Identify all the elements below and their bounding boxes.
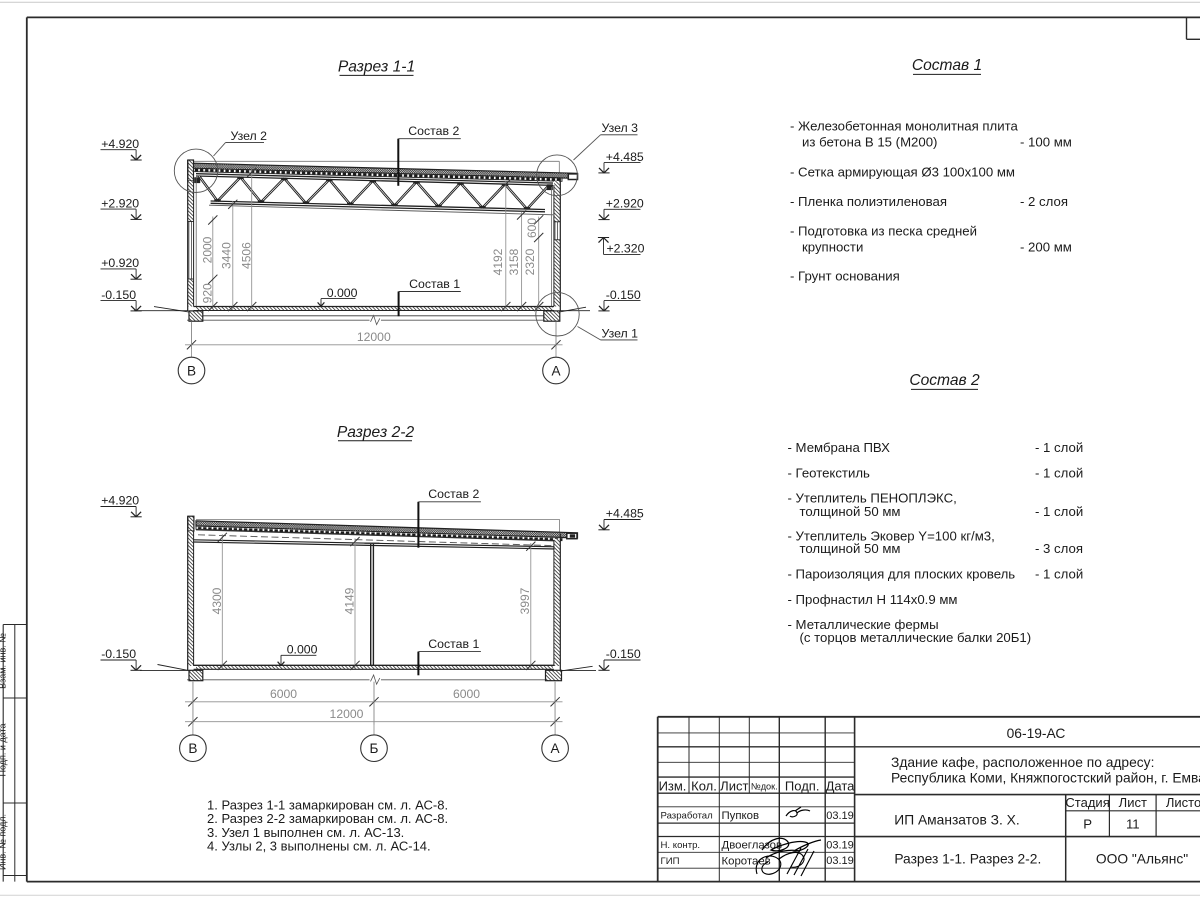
svg-text:2000: 2000 bbox=[200, 236, 214, 263]
svg-text:Разрез 2-2: Разрез 2-2 bbox=[337, 424, 415, 441]
svg-text:+4.485: +4.485 bbox=[606, 150, 644, 164]
svg-text:- 100 мм: - 100 мм bbox=[1020, 135, 1072, 150]
svg-text:ГИП: ГИП bbox=[661, 856, 680, 867]
svg-text:4149: 4149 bbox=[343, 587, 357, 614]
svg-text:Подп. и дата: Подп. и дата bbox=[0, 723, 8, 776]
svg-text:- Пароизоляция для плоских кро: - Пароизоляция для плоских кровель bbox=[788, 567, 1016, 582]
svg-text:(с торцов металлические балки: (с торцов металлические балки 20Б1) bbox=[800, 630, 1032, 645]
svg-text:Состав 2: Состав 2 bbox=[408, 124, 459, 138]
svg-text:Республика Коми, Княжпогостски: Республика Коми, Княжпогостский район, г… bbox=[891, 770, 1200, 785]
svg-text:Стадия: Стадия bbox=[1065, 795, 1109, 810]
svg-text:4. Узлы 2, 3 выполнены см. л.: 4. Узлы 2, 3 выполнены см. л. АС-14. bbox=[207, 839, 431, 854]
svg-text:0.000: 0.000 bbox=[287, 643, 318, 657]
svg-text:толщиной 50 мм: толщиной 50 мм bbox=[800, 541, 901, 556]
svg-text:Разрез 1-1: Разрез 1-1 bbox=[338, 59, 415, 76]
svg-text:- Пленка полиэтиленовая: - Пленка полиэтиленовая bbox=[790, 194, 947, 209]
svg-text:12000: 12000 bbox=[330, 707, 364, 721]
svg-text:0.000: 0.000 bbox=[327, 286, 358, 300]
svg-text:Узел 1: Узел 1 bbox=[602, 326, 639, 340]
svg-text:+2.920: +2.920 bbox=[606, 197, 644, 211]
svg-text:-0.150: -0.150 bbox=[101, 288, 136, 302]
svg-text:Разработал: Разработал bbox=[661, 810, 713, 821]
svg-text:Состав 1: Состав 1 bbox=[428, 637, 479, 651]
svg-text:12000: 12000 bbox=[357, 330, 391, 344]
svg-text:- 1 слой: - 1 слой bbox=[1035, 567, 1083, 582]
svg-text:Пупков: Пупков bbox=[722, 810, 760, 822]
svg-text:- Грунт основания: - Грунт основания bbox=[790, 269, 900, 284]
svg-text:Изм.: Изм. bbox=[659, 778, 687, 793]
svg-text:В: В bbox=[187, 363, 196, 378]
svg-text:- Железобетонная монолитная п: - Железобетонная монолитная плита bbox=[790, 119, 1019, 134]
svg-text:Листов: Листов bbox=[1166, 795, 1200, 810]
svg-text:А: А bbox=[551, 363, 561, 378]
svg-text:06-19-АС: 06-19-АС bbox=[1007, 726, 1066, 741]
svg-text:03.19: 03.19 bbox=[826, 839, 854, 851]
svg-text:толщиной 50 мм: толщиной 50 мм bbox=[800, 504, 901, 519]
svg-text:Взам. инв. №: Взам. инв. № bbox=[0, 633, 8, 689]
svg-text:Лист: Лист bbox=[1119, 795, 1147, 810]
svg-text:4300: 4300 bbox=[210, 587, 224, 614]
svg-text:- 1 слой: - 1 слой bbox=[1035, 504, 1083, 519]
svg-text:03.19: 03.19 bbox=[826, 855, 854, 867]
svg-text:- 200 мм: - 200 мм bbox=[1020, 240, 1072, 255]
svg-text:Кол.: Кол. bbox=[691, 778, 717, 793]
svg-text:Р: Р bbox=[1083, 817, 1092, 832]
svg-text:ИП Аманзатов З. Х.: ИП Аманзатов З. Х. bbox=[894, 813, 1019, 828]
svg-text:6000: 6000 bbox=[453, 687, 480, 701]
svg-text:А: А bbox=[551, 741, 561, 756]
svg-text:Инв. № подл.: Инв. № подл. bbox=[0, 814, 8, 870]
svg-text:3997: 3997 bbox=[518, 587, 532, 614]
svg-text:6000: 6000 bbox=[270, 687, 297, 701]
svg-text:В: В bbox=[188, 741, 197, 756]
svg-text:Б: Б bbox=[370, 741, 379, 756]
svg-text:Дата: Дата bbox=[826, 778, 856, 793]
svg-text:- 2 слоя: - 2 слоя bbox=[1020, 194, 1068, 209]
svg-text:+2.920: +2.920 bbox=[101, 196, 139, 210]
svg-text:4506: 4506 bbox=[239, 242, 253, 269]
svg-text:03.19: 03.19 bbox=[826, 810, 854, 822]
svg-text:Состав 1: Состав 1 bbox=[912, 57, 982, 74]
svg-text:Лист: Лист bbox=[720, 778, 748, 793]
svg-text:-0.150: -0.150 bbox=[606, 647, 641, 661]
svg-text:Здание кафе, расположенное по: Здание кафе, расположенное по адресу: bbox=[891, 755, 1154, 770]
svg-text:Состав 2: Состав 2 bbox=[909, 372, 980, 389]
svg-text:4192: 4192 bbox=[491, 248, 505, 275]
svg-text:+2.320: +2.320 bbox=[607, 242, 645, 256]
svg-text:11: 11 bbox=[1126, 817, 1140, 832]
svg-text:-0.150: -0.150 bbox=[101, 647, 136, 661]
svg-text:+4.485: +4.485 bbox=[606, 507, 644, 521]
svg-text:Н. контр.: Н. контр. bbox=[661, 840, 701, 851]
svg-text:Состав 1: Состав 1 bbox=[409, 277, 460, 291]
svg-text:ООО "Альянс": ООО "Альянс" bbox=[1096, 852, 1188, 867]
svg-text:- Мембрана ПВХ: - Мембрана ПВХ bbox=[788, 440, 891, 455]
svg-text:+4.920: +4.920 bbox=[101, 137, 139, 151]
svg-text:3158: 3158 bbox=[507, 248, 521, 275]
svg-text:№док.: №док. bbox=[751, 782, 778, 792]
svg-text:+4.920: +4.920 bbox=[101, 494, 139, 508]
svg-text:- 3 слоя: - 3 слоя bbox=[1035, 541, 1083, 556]
svg-text:600: 600 bbox=[525, 218, 539, 238]
svg-text:- Сетка армирующая Ø3 100х100: - Сетка армирующая Ø3 100х100 мм bbox=[790, 165, 1015, 180]
svg-text:Подп.: Подп. bbox=[785, 778, 820, 793]
svg-text:-0.150: -0.150 bbox=[606, 288, 641, 302]
svg-text:- Профнастил Н 114х0.9 мм: - Профнастил Н 114х0.9 мм bbox=[788, 592, 958, 607]
svg-text:Разрез 1-1. Разрез 2-2.: Разрез 1-1. Разрез 2-2. bbox=[894, 852, 1041, 867]
svg-text:+0.920: +0.920 bbox=[101, 256, 139, 270]
svg-text:- 1 слой: - 1 слой bbox=[1035, 440, 1083, 455]
svg-text:- Подготовка из песка средней: - Подготовка из песка средней bbox=[790, 224, 977, 239]
svg-text:- Геотекстиль: - Геотекстиль bbox=[788, 466, 871, 481]
svg-text:920: 920 bbox=[200, 283, 214, 303]
svg-text:Узел 3: Узел 3 bbox=[602, 121, 639, 135]
svg-text:крупности: крупности bbox=[802, 240, 863, 255]
svg-text:из бетона В 15 (М200): из бетона В 15 (М200) bbox=[802, 135, 937, 150]
svg-text:Состав 2: Состав 2 bbox=[428, 487, 479, 501]
svg-text:- 1 слой: - 1 слой bbox=[1035, 466, 1083, 481]
svg-text:Узел 2: Узел 2 bbox=[231, 129, 268, 143]
svg-text:2320: 2320 bbox=[523, 248, 537, 275]
svg-text:3440: 3440 bbox=[219, 242, 233, 269]
